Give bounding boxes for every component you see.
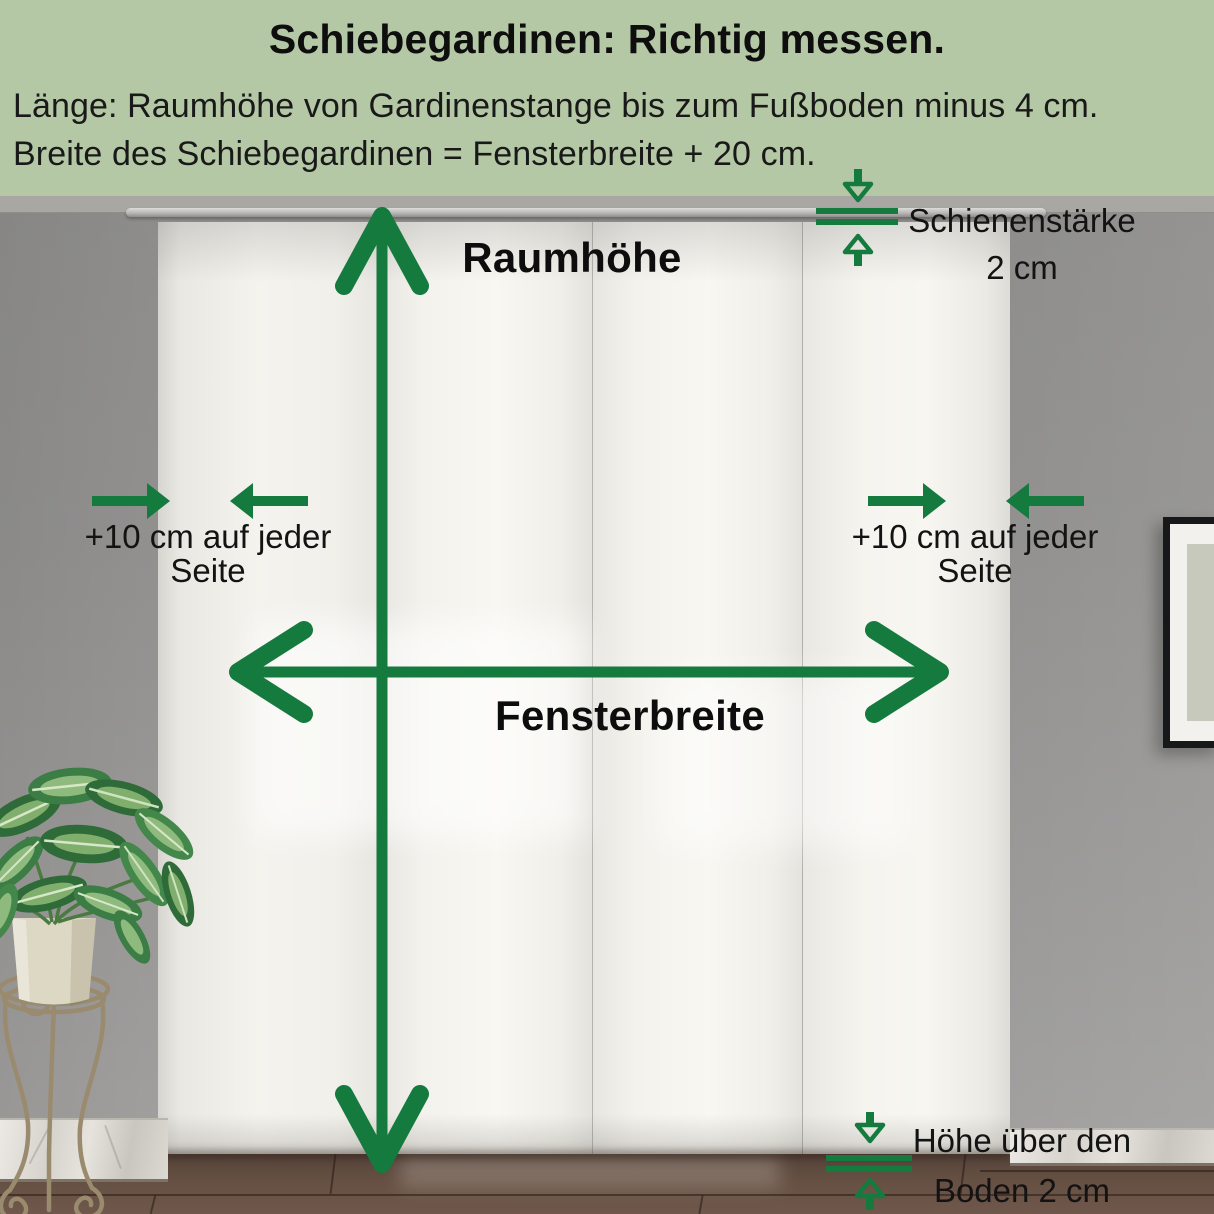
curtain-measuring-infographic: Schiebegardinen: Richtig messen. Länge: … bbox=[0, 0, 1214, 1214]
floor-clearance-label-line1: Höhe über den bbox=[913, 1116, 1131, 1166]
frame-artwork bbox=[1187, 544, 1214, 721]
picture-frame bbox=[1163, 517, 1214, 748]
header-band: Schiebegardinen: Richtig messen. Länge: … bbox=[0, 0, 1214, 196]
right-extension-label: +10 cm auf jeder Seite bbox=[852, 520, 1099, 588]
instruction-width: Breite des Schiebegardinen = Fensterbrei… bbox=[13, 135, 816, 174]
left-extension-label: +10 cm auf jeder Seite bbox=[85, 520, 332, 588]
floor-clearance-label: Höhe über den Boden 2 cm bbox=[913, 1116, 1131, 1214]
plant-stand bbox=[0, 974, 108, 1214]
curtain-bottom-shadow bbox=[158, 1114, 1010, 1154]
rail-thickness-label-line1: Schienenstärke bbox=[908, 197, 1135, 244]
floor-reflection bbox=[400, 1154, 780, 1188]
page-title: Schiebegardinen: Richtig messen. bbox=[269, 16, 945, 63]
left-extension-label-line1: +10 cm auf jeder bbox=[85, 520, 332, 554]
rail-thickness-label-line2: 2 cm bbox=[908, 244, 1135, 291]
window-width-label: Fensterbreite bbox=[495, 694, 765, 738]
left-extension-label-line2: Seite bbox=[85, 554, 332, 588]
sliding-curtain-panels bbox=[158, 222, 1010, 1154]
frame-mat bbox=[1170, 524, 1214, 741]
plant-pot bbox=[12, 918, 96, 1006]
right-extension-label-line1: +10 cm auf jeder bbox=[852, 520, 1099, 554]
curtain-shadow bbox=[160, 1151, 1010, 1158]
instruction-length: Länge: Raumhöhe von Gardinenstange bis z… bbox=[13, 87, 1098, 126]
floor-clearance-label-line2: Boden 2 cm bbox=[913, 1166, 1131, 1214]
right-extension-label-line2: Seite bbox=[852, 554, 1099, 588]
potted-plant bbox=[0, 752, 207, 1214]
rail-thickness-label: Schienenstärke 2 cm bbox=[908, 197, 1135, 291]
room-height-label: Raumhöhe bbox=[462, 236, 681, 280]
